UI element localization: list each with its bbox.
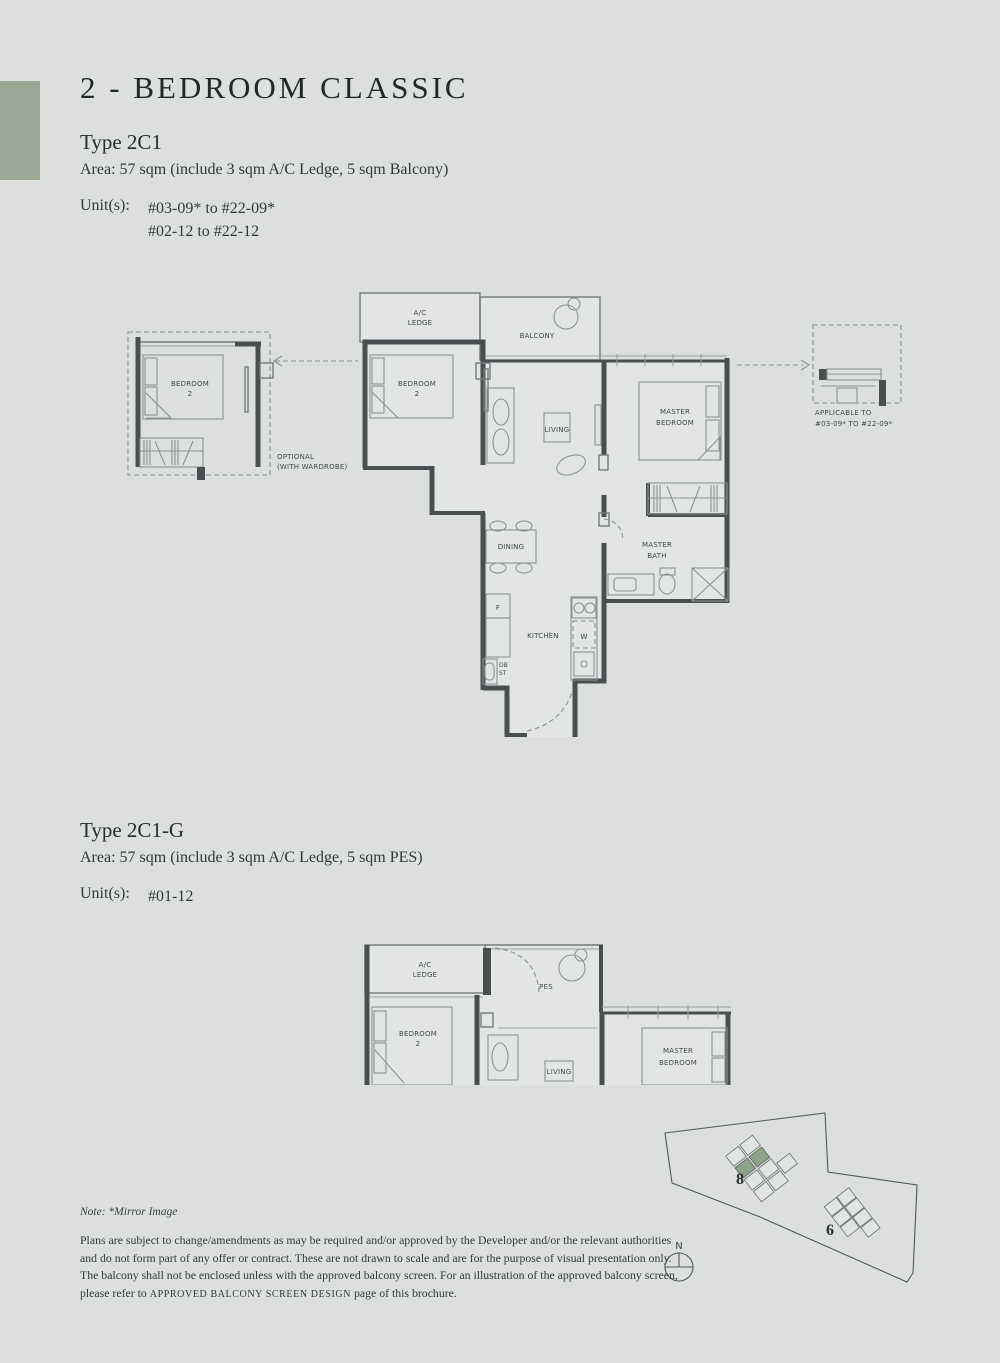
floorplan-type-2c1: A/C LEDGE BALCONY [115,285,915,745]
disclaimer-line: page of this brochure. [351,1286,457,1300]
washer-label: W [580,633,587,641]
pes-label: PES [539,983,553,991]
optional-label: OPTIONAL [277,453,314,461]
block-8-label: 8 [736,1171,744,1188]
fridge-label: F [496,604,500,612]
ac-ledge-label: LEDGE [408,319,433,327]
master-bedroom-label: MASTER [663,1047,693,1055]
block-8-buildings [726,1124,803,1202]
dining-label: DINING [498,543,525,551]
door-frame [260,363,273,378]
ac-ledge-floor [360,293,480,342]
bedroom2-label: 2 [415,390,420,398]
st-label: ST [499,670,507,677]
block-6-label: 6 [826,1222,834,1239]
applicable-label: #03-09* TO #22-09* [815,420,893,428]
floorplan-2c1g-drawing: A/C LEDGE PES [340,935,760,1085]
optional-bedroom-layout: BEDROOM 2 OPTIONAL (WITH WARDROBE) [128,332,358,480]
unit-range: #02-12 to #22-12 [148,220,275,243]
master-bath-label: BATH [647,552,666,560]
page-title: 2 - BEDROOM CLASSIC [80,70,469,106]
applicable-label: APPLICABLE TO [815,409,872,417]
units-label: Unit(s): [80,885,148,908]
ac-ledge-label: A/C [414,309,427,317]
type-2c1-name: Type 2C1 [80,130,162,155]
unit-range: #03-09* to #22-09* [148,197,275,220]
kitchen-label: KITCHEN [527,632,559,640]
master-bedroom-label: MASTER [660,408,690,416]
unit-range: #01-12 [148,885,193,908]
balcony-floor [480,297,600,360]
type-2c1g-units: Unit(s): #01-12 [80,885,193,908]
wall-stub [197,467,205,480]
disclaimer-line: Plans are subject to change/amendments a… [80,1233,671,1247]
master-bedroom-label: BEDROOM [656,419,694,427]
bedroom2-label: BEDROOM [398,380,436,388]
type-2c1g-name: Type 2C1-G [80,818,184,843]
applicable-detail: APPLICABLE TO #03-09* TO #22-09* [737,325,901,428]
units-label: Unit(s): [80,197,148,243]
floorplan-type-2c1g: A/C LEDGE PES [340,935,760,1085]
living-label: LIVING [547,1068,572,1076]
living-label: LIVING [545,426,570,434]
ac-ledge-label: A/C [419,961,432,969]
site-plan-drawing: 8 6 N [650,1100,940,1300]
site-boundary [665,1113,917,1282]
type-2c1-units: Unit(s): #03-09* to #22-09* #02-12 to #2… [80,197,275,243]
opt-bedroom2-label: BEDROOM [171,380,209,388]
unit-floor [363,342,727,737]
disclaimer-line: please refer to [80,1286,150,1300]
type-2c1g-area: Area: 57 sqm (include 3 sqm A/C Ledge, 5… [80,849,423,867]
master-bedroom-label: BEDROOM [659,1059,697,1067]
mirror-image-note: Note: *Mirror Image [80,1206,177,1218]
site-key-plan: 8 6 N [650,1100,940,1300]
optional-label: (WITH WARDROBE) [277,463,347,471]
balcony-label: BALCONY [520,332,555,340]
brochure-page: 2 - BEDROOM CLASSIC Type 2C1 Area: 57 sq… [0,0,1000,1363]
ac-ledge-label: LEDGE [413,971,438,979]
disclaimer-line: and do not form part of any offer or con… [80,1251,672,1265]
disclaimer-smallcaps: APPROVED BALCONY SCREEN DESIGN [150,1289,351,1300]
disclaimer: Plans are subject to change/amendments a… [80,1232,678,1303]
bedroom2-label: 2 [416,1040,421,1048]
bedroom2-label: BEDROOM [399,1030,437,1038]
wardrobe [140,438,203,467]
floorplan-2c1-drawing: A/C LEDGE BALCONY [115,285,915,745]
master-bath-label: MASTER [642,541,672,549]
type-2c1-area: Area: 57 sqm (include 3 sqm A/C Ledge, 5… [80,161,448,179]
accent-block [0,81,40,180]
disclaimer-line: The balcony shall not be enclosed unless… [80,1268,678,1282]
opt-bedroom2-label: 2 [188,390,193,398]
db-label: DB [499,662,508,669]
